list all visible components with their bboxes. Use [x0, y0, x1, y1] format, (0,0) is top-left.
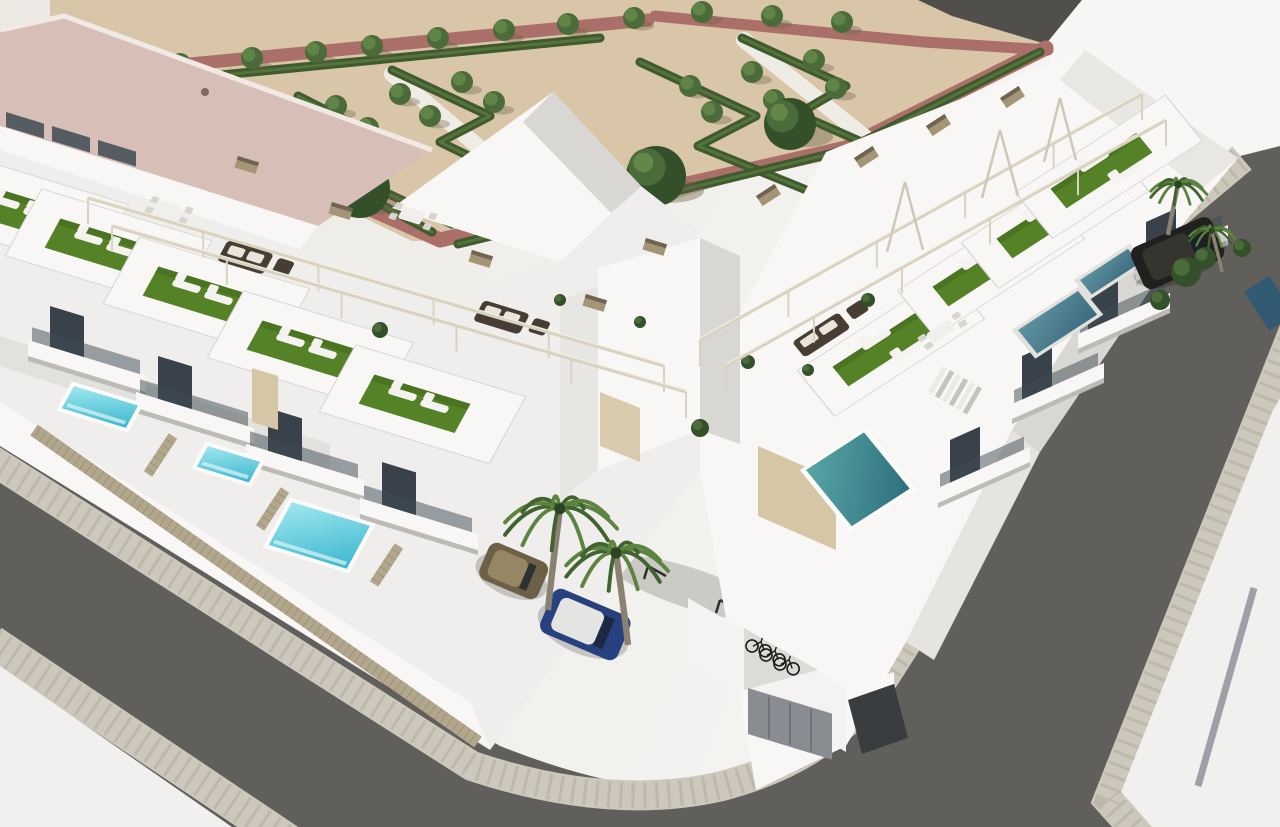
- potted-plant-highlight: [635, 317, 642, 324]
- bush-highlight: [1196, 249, 1208, 261]
- park-tree-highlight: [703, 103, 716, 116]
- park-tree-highlight: [429, 29, 442, 42]
- roof-vent: [201, 88, 209, 96]
- potted-plant-highlight: [373, 323, 382, 332]
- palm-crown: [1174, 181, 1182, 189]
- park-tree-highlight: [693, 3, 706, 16]
- bush-highlight: [1234, 240, 1244, 250]
- park-tree-highlight: [495, 21, 508, 34]
- bush-highlight: [1152, 292, 1163, 303]
- architectural-rendering: [0, 0, 1280, 827]
- park-tree-highlight: [743, 63, 756, 76]
- palm-crown: [554, 503, 565, 514]
- park-tree-highlight: [833, 13, 846, 26]
- potted-plant-highlight: [555, 295, 562, 302]
- bush-highlight: [1173, 259, 1190, 276]
- park-tree-highlight: [453, 73, 466, 86]
- potted-plant-highlight: [803, 365, 810, 372]
- park-tree-highlight: [307, 43, 320, 56]
- park-tree-highlight: [681, 77, 694, 90]
- park-large-tree-highlight: [634, 153, 654, 173]
- park-tree-highlight: [625, 9, 638, 22]
- park-large-tree-highlight: [771, 104, 788, 121]
- park-tree-highlight: [763, 7, 776, 20]
- park-tree-highlight: [485, 93, 498, 106]
- park-tree-highlight: [827, 79, 840, 92]
- potted-plant-highlight: [692, 420, 702, 430]
- palm-crown: [1209, 227, 1215, 233]
- render-canvas: [0, 0, 1280, 827]
- park-tree-highlight: [243, 49, 256, 62]
- beige-accent-panel: [252, 368, 278, 430]
- park-tree-highlight: [327, 97, 340, 110]
- park-tree-highlight: [391, 85, 404, 98]
- potted-plant-highlight: [862, 294, 870, 302]
- park-tree-highlight: [805, 51, 818, 64]
- park-tree-highlight: [421, 107, 434, 120]
- corner-tower-2: [560, 286, 598, 500]
- park-tree-highlight: [363, 37, 376, 50]
- park-tree-highlight: [559, 15, 572, 28]
- palm-crown: [611, 547, 622, 558]
- corner-tower-side: [700, 238, 740, 444]
